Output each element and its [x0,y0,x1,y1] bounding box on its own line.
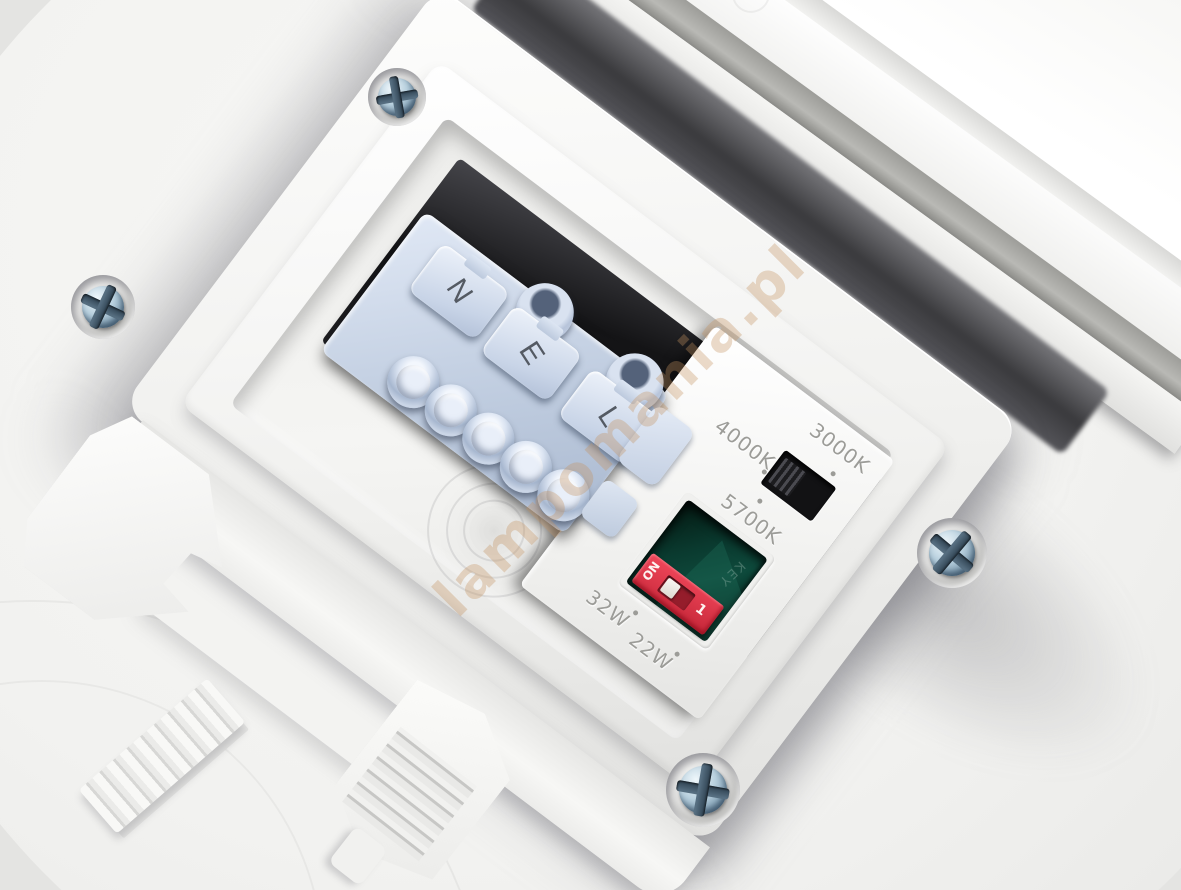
terminal-label-l: L [590,400,628,433]
dip-on-label: ON [640,561,662,584]
mounting-screw [917,518,987,588]
terminal-label-e: E [512,336,551,371]
photo-stage: 3000K 4000K 5700K KEY ON 1 32W 22W N E [0,0,1181,890]
mounting-screw [71,275,135,339]
terminal-label-n: N [439,273,479,310]
mounting-screw [368,68,426,126]
mounting-screw [666,753,740,827]
dip-position-label: 1 [692,601,709,620]
